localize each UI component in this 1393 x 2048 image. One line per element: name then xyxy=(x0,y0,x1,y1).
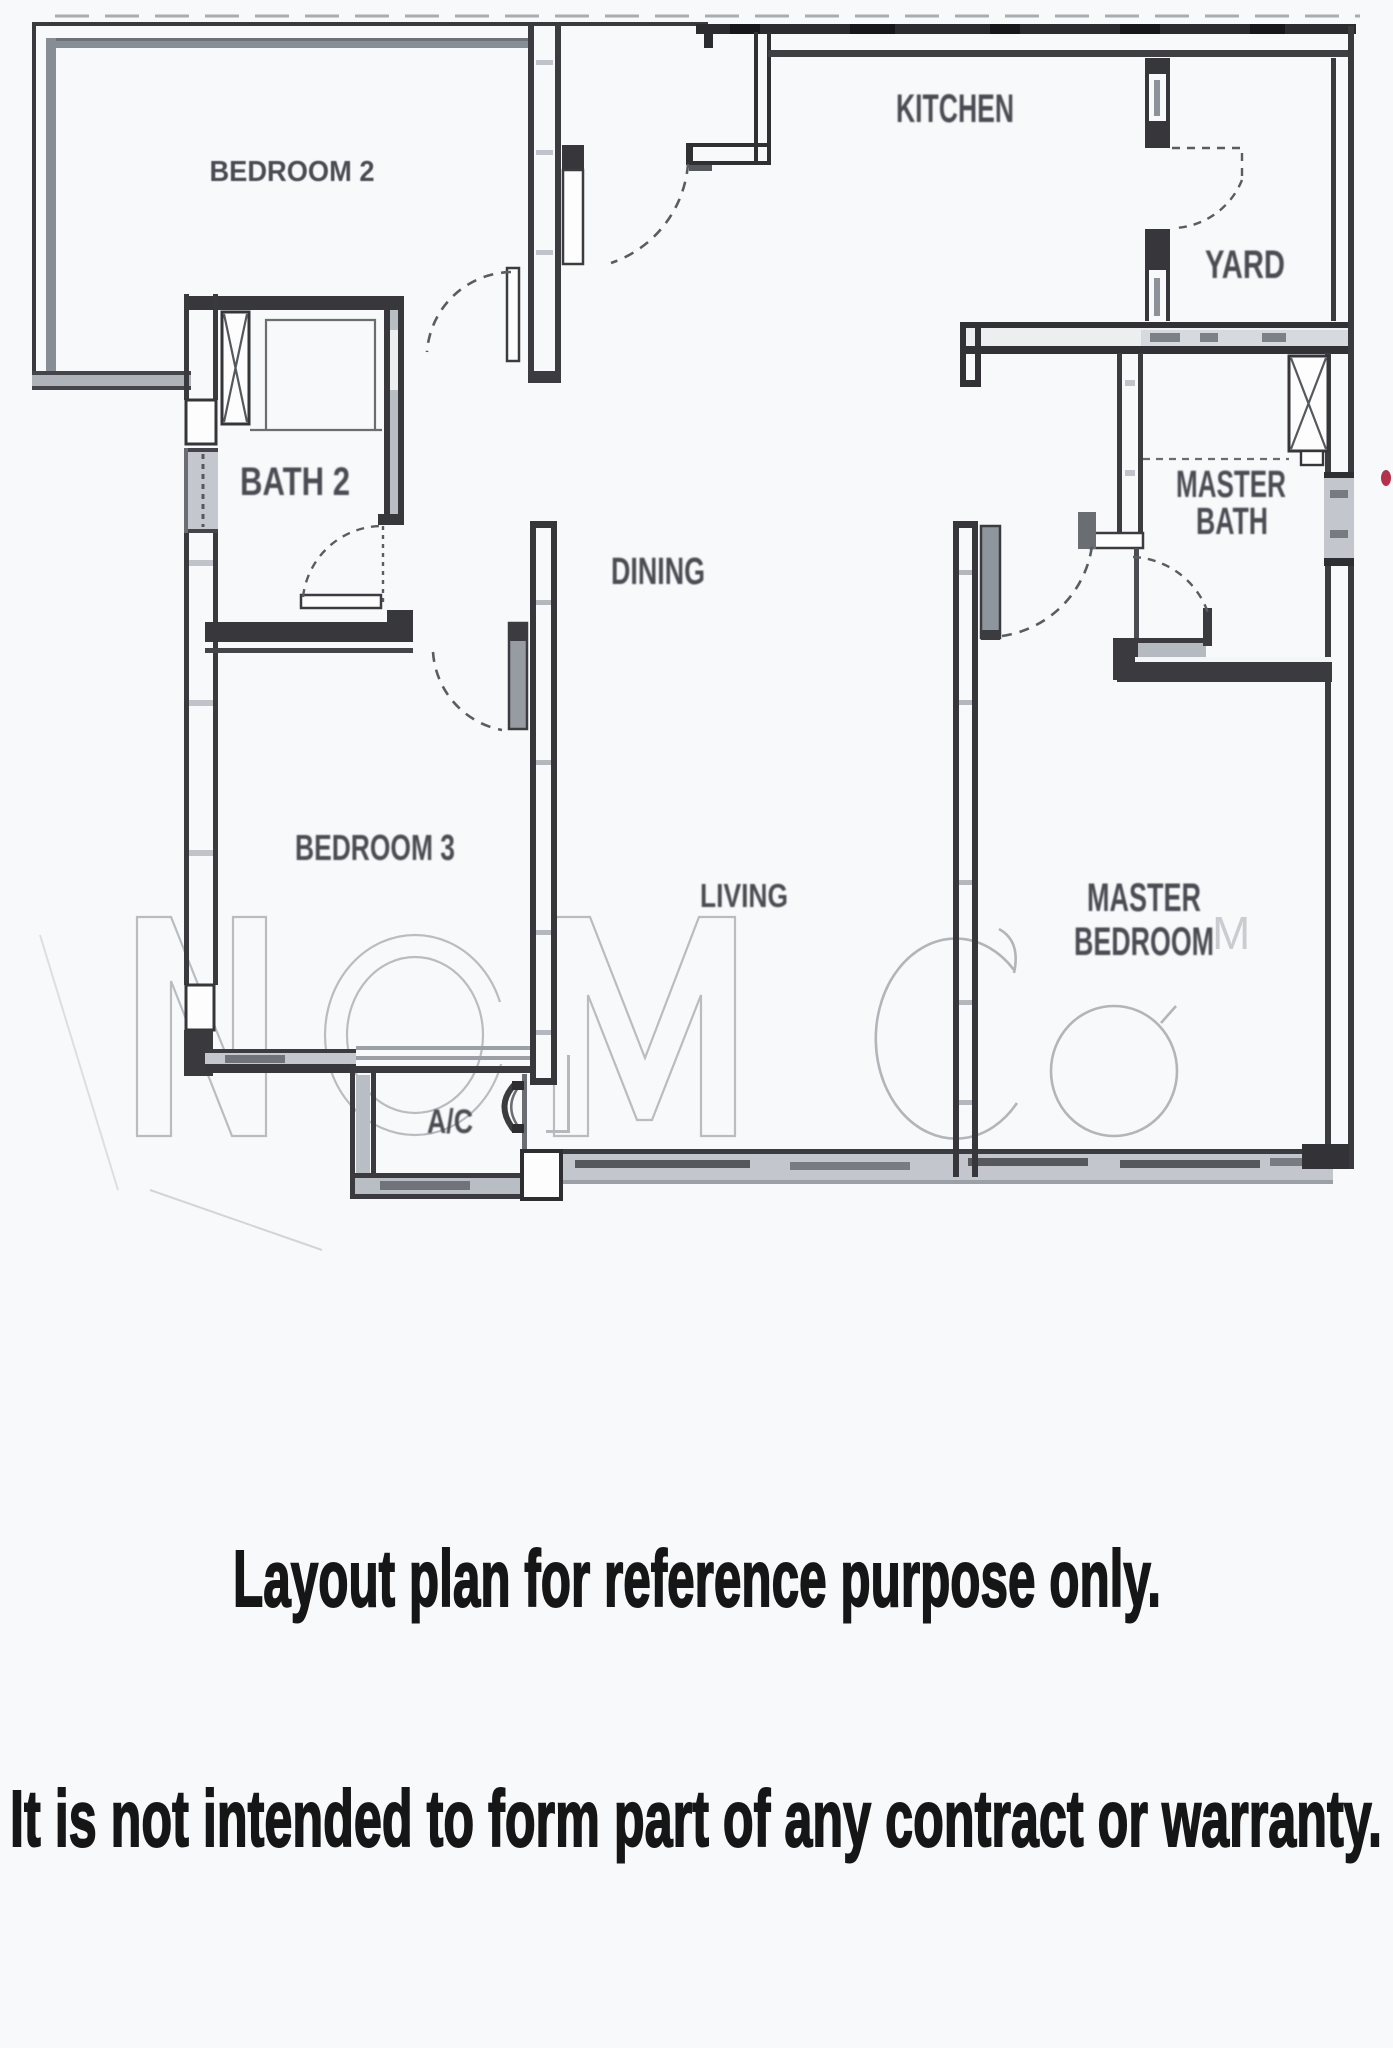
svg-text:A/C: A/C xyxy=(427,1103,473,1141)
svg-text:MASTER: MASTER xyxy=(1087,876,1201,920)
svg-text:KITCHEN: KITCHEN xyxy=(896,87,1014,131)
svg-text:BATH 2: BATH 2 xyxy=(240,460,350,504)
svg-text:M: M xyxy=(1212,907,1250,959)
svg-text:LIVING: LIVING xyxy=(700,877,788,914)
svg-text:YARD: YARD xyxy=(1205,243,1285,287)
svg-text:It is not intended to form par: It is not intended to form part of any c… xyxy=(10,1774,1382,1863)
svg-text:BEDROOM 3: BEDROOM 3 xyxy=(295,827,455,868)
svg-text:Layout plan for reference purp: Layout plan for reference purpose only. xyxy=(233,1534,1161,1623)
svg-text:DINING: DINING xyxy=(611,551,705,593)
svg-text:BEDROOM: BEDROOM xyxy=(1074,920,1214,964)
svg-text:BEDROOM 2: BEDROOM 2 xyxy=(210,156,375,188)
svg-text:MASTER: MASTER xyxy=(1176,464,1286,506)
svg-text:BATH: BATH xyxy=(1196,501,1268,543)
